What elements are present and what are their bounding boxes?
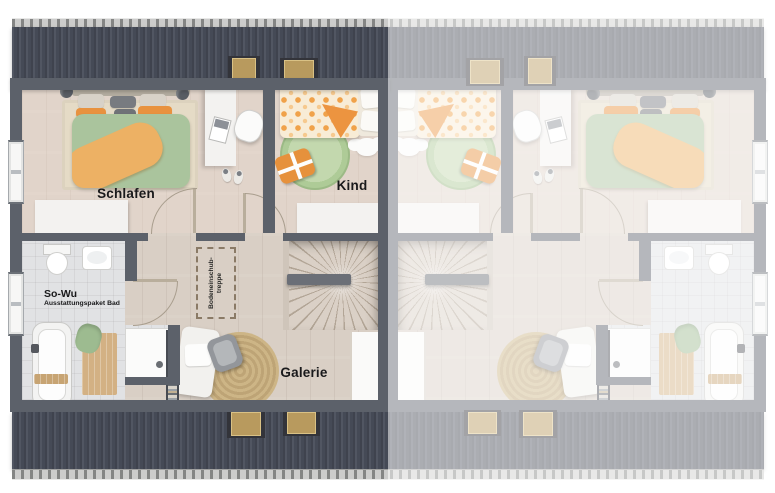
wall-corridor [283, 233, 378, 241]
wall-bathroom [125, 241, 137, 281]
bed-duvet [72, 114, 190, 188]
sideboard [35, 200, 128, 233]
mirrored-unit-overlay [388, 0, 775, 493]
stair-stringer [283, 240, 289, 330]
wall-shower [125, 377, 180, 385]
cloud-rug [356, 138, 378, 156]
room-label-kind: Kind [324, 178, 380, 193]
tub-tray [34, 374, 68, 384]
room-label-galerie: Galerie [265, 365, 343, 380]
armchair-seat [211, 338, 238, 367]
window [8, 272, 24, 336]
shower-tray [125, 328, 171, 379]
laptop-screen [214, 119, 230, 130]
window [8, 140, 24, 204]
loft-ladder-label-line1: Bodeneinschub- [208, 257, 216, 309]
loft-ladder-label: Bodeneinschub- treppe [198, 249, 234, 317]
wall-top [10, 78, 390, 90]
bathtub [32, 322, 72, 408]
wall-corridor [22, 233, 148, 241]
duvet-blanket [72, 116, 169, 188]
shower-drain [156, 361, 163, 368]
skylight [227, 410, 265, 438]
slipper-toe [236, 171, 242, 177]
gallery-void [350, 332, 380, 400]
floor-plan: Bodeneinschub- treppe Schlafen Kind Gale… [0, 0, 775, 493]
loft-ladder-label-line2: treppe [216, 273, 224, 293]
wall-left [10, 90, 22, 412]
tub-inner [38, 329, 66, 401]
wall-bottom [10, 400, 378, 412]
loft-ladder-marking: Bodeneinschub- treppe [196, 247, 236, 319]
washbasin [82, 246, 112, 270]
wall-corridor [196, 233, 245, 241]
bad-label-subtitle: Ausstattungspaket Bad [44, 300, 136, 308]
kid-wardrobe [297, 203, 378, 233]
slipper-toe [223, 169, 229, 175]
tub-faucet [31, 344, 39, 353]
skylight [283, 410, 320, 436]
room-label-schlafen: Schlafen [74, 186, 178, 201]
room-label-bad: So-Wu Ausstattungspaket Bad [44, 288, 136, 308]
stair-handrail [287, 274, 351, 285]
bed-pillow [78, 94, 104, 108]
wall-bedroom-divider [263, 90, 275, 233]
bed-pillow [110, 96, 136, 108]
wall-shower [168, 325, 180, 385]
staircase [283, 240, 378, 330]
bad-label-title: So-Wu [44, 288, 136, 300]
house-unit-left: Bodeneinschub- treppe Schlafen Kind Gale… [10, 78, 390, 412]
basin-bowl [87, 251, 107, 264]
